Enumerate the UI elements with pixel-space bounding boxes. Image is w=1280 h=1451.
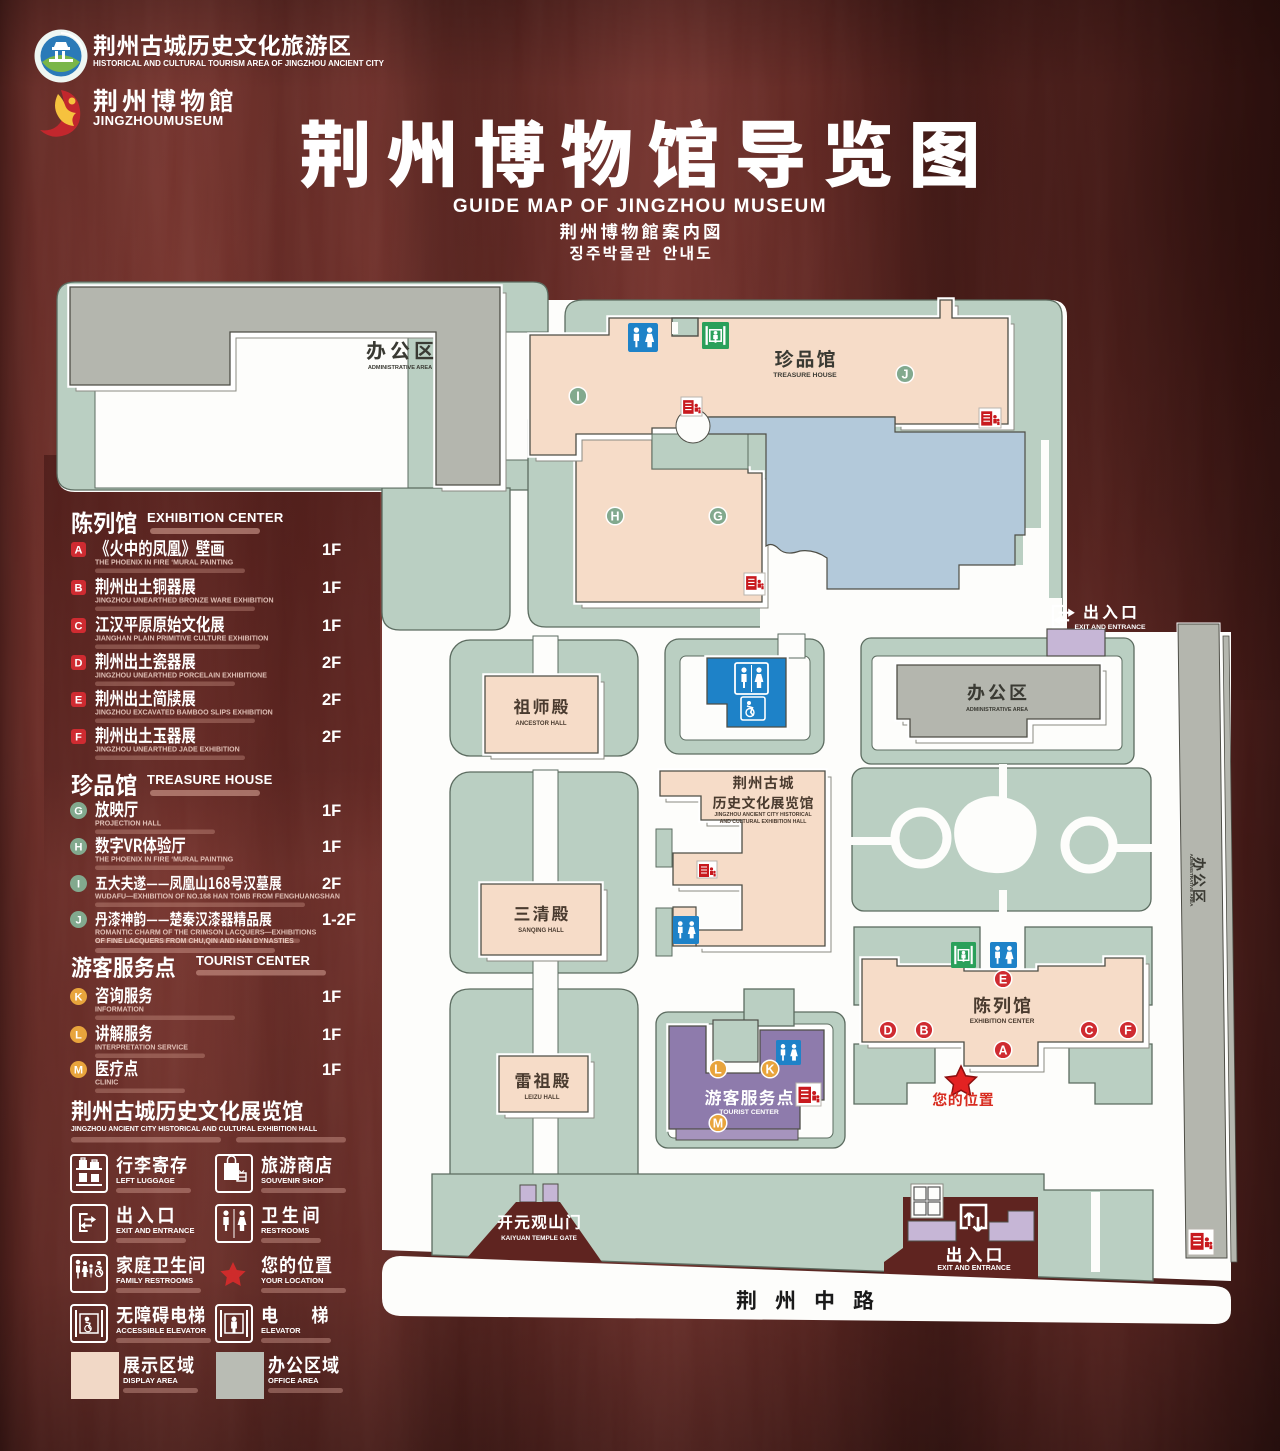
svg-text:M: M	[713, 1117, 723, 1131]
svg-text:1-2F: 1-2F	[322, 911, 356, 929]
svg-text:L: L	[75, 1030, 82, 1042]
svg-text:ADMINISTRATIVE AREA: ADMINISTRATIVE AREA	[368, 365, 432, 371]
svg-text:JINGZHOU UNEARTHED JADE EXHIBI: JINGZHOU UNEARTHED JADE EXHIBITION	[95, 747, 240, 754]
svg-text:G: G	[74, 806, 83, 818]
svg-text:E: E	[999, 973, 1007, 987]
svg-text:A: A	[75, 545, 83, 557]
svg-text:KAIYUAN TEMPLE GATE: KAIYUAN TEMPLE GATE	[501, 1235, 578, 1242]
svg-text:OF FINE LACQUERS FROM CHU,QIN: OF FINE LACQUERS FROM CHU,QIN AND HAN DY…	[95, 938, 294, 945]
svg-text:RESTROOMS: RESTROOMS	[261, 1226, 309, 1235]
svg-text:F: F	[1124, 1024, 1132, 1038]
svg-text:INTERPRETATION SERVICE: INTERPRETATION SERVICE	[95, 1045, 188, 1052]
svg-text:B: B	[75, 583, 83, 595]
svg-text:EXIT AND ENTRANCE: EXIT AND ENTRANCE	[937, 1265, 1011, 1272]
svg-text:ANCESTOR HALL: ANCESTOR HALL	[515, 721, 567, 727]
svg-text:WUDAFU—EXHIBITION OF NO.168 HA: WUDAFU—EXHIBITION OF NO.168 HAN TOMB FRO…	[95, 894, 340, 901]
svg-text:K: K	[765, 1063, 774, 1077]
svg-text:1F: 1F	[322, 802, 341, 820]
svg-text:ACCESSIBLE ELEVATOR: ACCESSIBLE ELEVATOR	[116, 1326, 207, 1335]
svg-text:1F: 1F	[322, 1061, 341, 1079]
svg-text:EXIT AND ENTRANCE: EXIT AND ENTRANCE	[116, 1226, 194, 1235]
svg-text:SOUVENIR SHOP: SOUVENIR SHOP	[261, 1176, 324, 1185]
svg-text:HISTORICAL AND CULTURAL TOURIS: HISTORICAL AND CULTURAL TOURISM AREA OF …	[93, 59, 385, 68]
svg-text:FAMILY RESTROOMS: FAMILY RESTROOMS	[116, 1276, 193, 1285]
svg-text:LEFT LUGGAGE: LEFT LUGGAGE	[116, 1176, 175, 1185]
svg-text:THE PHOENIX IN FIRE ‘MURAL PAI: THE PHOENIX IN FIRE ‘MURAL PAINTING	[95, 560, 234, 567]
svg-text:D: D	[883, 1024, 892, 1038]
svg-text:ELEVATOR: ELEVATOR	[261, 1326, 301, 1335]
svg-text:DISPLAY AREA: DISPLAY AREA	[123, 1376, 178, 1385]
svg-text:2F: 2F	[322, 875, 341, 893]
svg-text:B: B	[919, 1024, 928, 1038]
svg-text:1F: 1F	[322, 988, 341, 1006]
svg-text:J: J	[902, 368, 909, 382]
svg-text:TREASURE HOUSE: TREASURE HOUSE	[773, 372, 837, 379]
svg-text:TOURIST CENTER: TOURIST CENTER	[719, 1109, 779, 1116]
svg-text:INFORMATION: INFORMATION	[95, 1007, 144, 1014]
svg-text:F: F	[75, 732, 82, 744]
svg-text:D: D	[75, 658, 83, 670]
svg-text:J: J	[75, 915, 81, 927]
svg-text:JINGZHOU EXCAVATED BAMBOO SLIP: JINGZHOU EXCAVATED BAMBOO SLIPS EXHIBITI…	[95, 710, 273, 717]
svg-text:AND CULTURAL EXHIBITION HALL: AND CULTURAL EXHIBITION HALL	[720, 819, 808, 825]
svg-text:A: A	[998, 1044, 1007, 1058]
svg-text:1F: 1F	[322, 617, 341, 635]
svg-text:I: I	[576, 390, 579, 404]
svg-text:C: C	[75, 621, 83, 633]
svg-text:E: E	[75, 695, 82, 707]
svg-text:L: L	[714, 1063, 722, 1077]
svg-text:EXHIBITION CENTER: EXHIBITION CENTER	[970, 1018, 1035, 1025]
svg-text:JINGZHOUMUSEUM: JINGZHOUMUSEUM	[93, 113, 224, 128]
svg-text:EXHIBITION CENTER: EXHIBITION CENTER	[147, 510, 284, 525]
svg-text:1F: 1F	[322, 1026, 341, 1044]
svg-text:JINGZHOU ANCIENT CITY HISTORIC: JINGZHOU ANCIENT CITY HISTORICAL AND CUL…	[71, 1126, 317, 1133]
svg-text:PROJECTION HALL: PROJECTION HALL	[95, 821, 162, 828]
svg-text:2F: 2F	[322, 654, 341, 672]
svg-text:H: H	[75, 842, 83, 854]
svg-text:ADMINISTRATIVE AREA: ADMINISTRATIVE AREA	[966, 707, 1028, 713]
svg-text:G: G	[713, 510, 723, 524]
svg-text:JINGZHOU ANCIENT CITY HISTORIC: JINGZHOU ANCIENT CITY HISTORICAL	[714, 812, 812, 818]
svg-text:YOUR LOCATION: YOUR LOCATION	[261, 1276, 323, 1285]
svg-text:ROMANTIC CHARM OF THE CRIMSON: ROMANTIC CHARM OF THE CRIMSON LACQUERS—E…	[95, 930, 317, 937]
svg-text:1F: 1F	[322, 541, 341, 559]
svg-text:2F: 2F	[322, 728, 341, 746]
svg-text:LEIZU HALL: LEIZU HALL	[525, 1095, 560, 1101]
svg-text:1F: 1F	[322, 579, 341, 597]
svg-text:M: M	[74, 1065, 83, 1077]
svg-text:GUIDE MAP OF JINGZHOU MUSEUM: GUIDE MAP OF JINGZHOU MUSEUM	[453, 196, 827, 217]
svg-text:C: C	[1084, 1024, 1093, 1038]
svg-text:K: K	[75, 992, 83, 1004]
svg-text:JINGZHOU UNEARTHED PORCELAIN E: JINGZHOU UNEARTHED PORCELAIN EXHIBITIONE	[95, 673, 267, 680]
svg-text:TOURIST CENTER: TOURIST CENTER	[196, 953, 310, 968]
svg-text:TREASURE HOUSE: TREASURE HOUSE	[147, 772, 273, 787]
svg-text:I: I	[77, 879, 80, 891]
svg-text:EXIT AND ENTRANCE: EXIT AND ENTRANCE	[1074, 624, 1146, 631]
svg-text:SANQING HALL: SANQING HALL	[518, 928, 564, 934]
svg-text:JIANGHAN PLAIN PRIMITIVE CULTU: JIANGHAN PLAIN PRIMITIVE CULTURE EXHIBIT…	[95, 636, 268, 643]
svg-text:1F: 1F	[322, 838, 341, 856]
svg-text:ADMINISTRATIVE AREA: ADMINISTRATIVE AREA	[1189, 854, 1194, 908]
svg-text:CLINIC: CLINIC	[95, 1080, 118, 1087]
svg-text:JINGZHOU UNEARTHED BRONZE WARE: JINGZHOU UNEARTHED BRONZE WARE EXHIBITIO…	[95, 598, 274, 605]
svg-text:OFFICE AREA: OFFICE AREA	[268, 1376, 319, 1385]
svg-text:2F: 2F	[322, 691, 341, 709]
svg-text:THE PHOENIX IN FIRE ‘MURAL PAI: THE PHOENIX IN FIRE ‘MURAL PAINTING	[95, 857, 234, 864]
svg-text:H: H	[610, 510, 619, 524]
